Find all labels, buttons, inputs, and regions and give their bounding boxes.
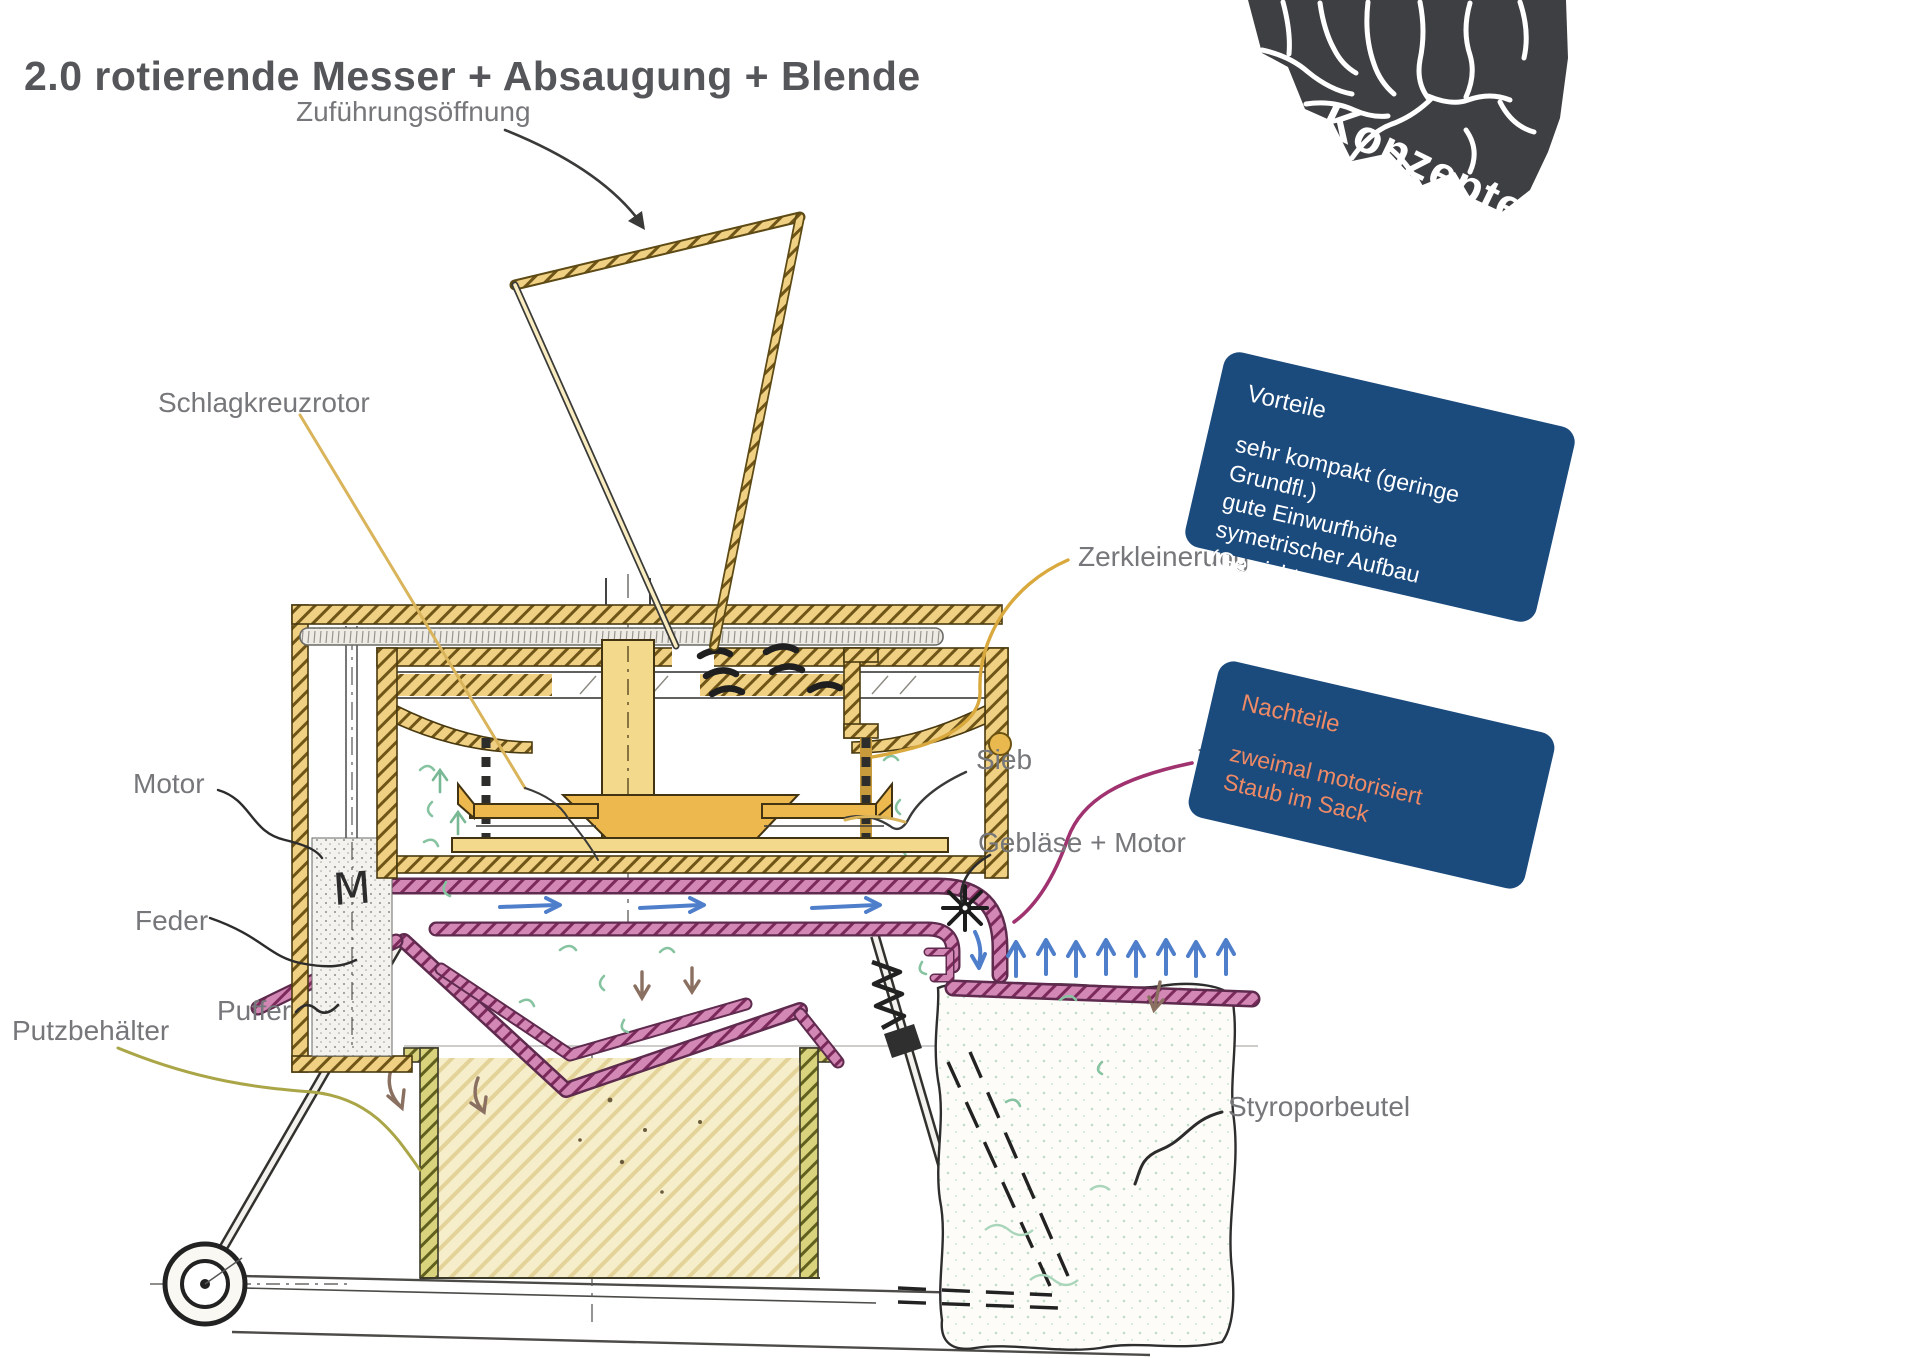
- clamp-block-right: [884, 1024, 922, 1058]
- label-styroporbeutel: Styroporbeutel: [1228, 1091, 1410, 1122]
- label-motor: Motor: [133, 768, 205, 799]
- airflow-arrows: [500, 898, 1234, 976]
- label-putzbehaelter: Putzbehälter: [12, 1015, 169, 1046]
- label-feder: Feder: [135, 905, 208, 936]
- label-puffer: Puffer: [217, 995, 291, 1026]
- cleaning-container: [404, 1048, 834, 1278]
- label-sieb: Sieb: [976, 744, 1032, 775]
- stones-logo: Konzepte: [1248, 0, 1568, 235]
- feed-hopper: [515, 217, 800, 646]
- label-schlagkreuzrotor: Schlagkreuzrotor: [158, 387, 370, 418]
- fan-icon: [943, 886, 987, 930]
- label-zufuehrungsoeffnung: Zuführungsöffnung: [296, 96, 531, 127]
- styrofoam-bag: [898, 984, 1236, 1350]
- motor-symbol: M: [331, 862, 372, 916]
- concept-sheet: 2.0 rotierende Messer + Absaugung + Blen…: [0, 0, 1920, 1358]
- label-geblaese-motor: Gebläse + Motor: [978, 827, 1186, 858]
- wheel: [165, 1244, 245, 1324]
- machine-diagram: Konzepte: [0, 0, 1920, 1358]
